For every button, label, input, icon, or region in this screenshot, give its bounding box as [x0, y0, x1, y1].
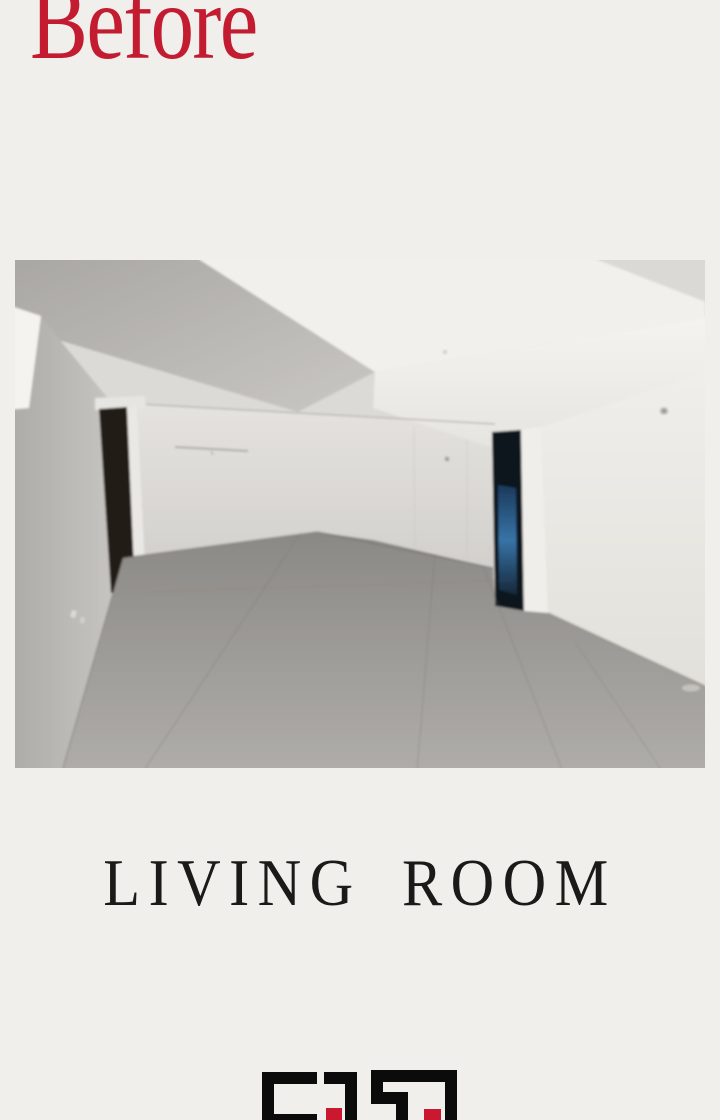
room-title: LIVING ROOM — [36, 850, 684, 917]
room-scene — [15, 260, 705, 768]
logo-red-dot — [424, 1109, 441, 1120]
logo-red-dot — [326, 1108, 342, 1120]
post-canvas: Before — [0, 0, 720, 1120]
brand-logo-glyphs — [260, 1070, 457, 1120]
before-label: Before — [30, 0, 257, 76]
dark-doorway — [492, 430, 524, 611]
living-room-photo — [15, 260, 705, 768]
brand-logo — [260, 1070, 457, 1120]
